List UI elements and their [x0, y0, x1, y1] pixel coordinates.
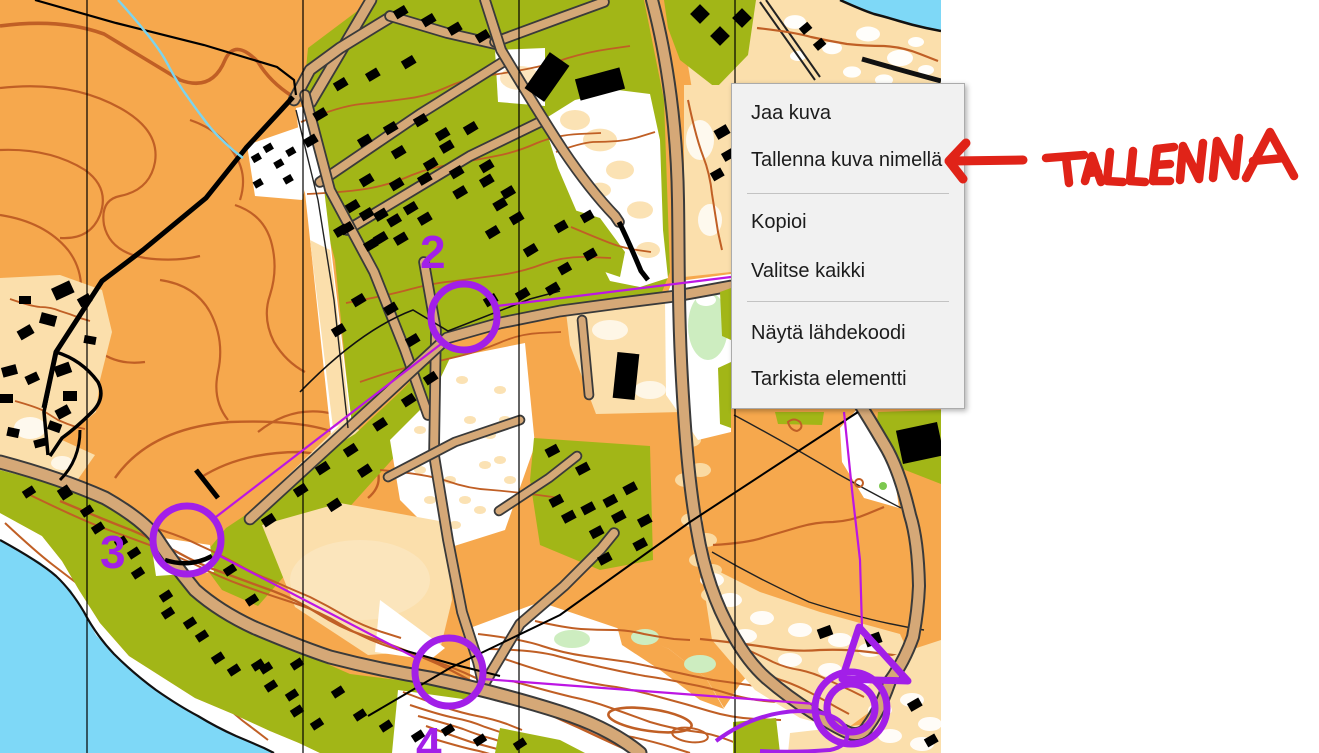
svg-text:4: 4 [416, 718, 442, 753]
svg-text:3: 3 [100, 526, 126, 578]
svg-text:2: 2 [420, 226, 446, 278]
